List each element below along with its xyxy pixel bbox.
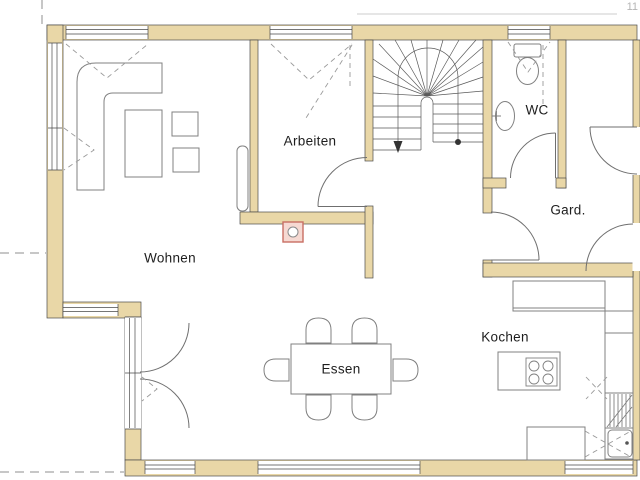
dining-chair (306, 395, 331, 420)
door-entry (590, 127, 637, 174)
living-furniture (77, 63, 248, 211)
room-label-wohnen: Wohnen (144, 251, 196, 266)
radiator (237, 146, 248, 211)
floor-plan: Wohnen Arbeiten WC Gard. Essen Kochen 11 (0, 0, 640, 480)
side-table (172, 112, 198, 136)
stair-direction-arrow (394, 141, 403, 153)
room-label-wc: WC (525, 103, 548, 118)
floor-plan-drawing (0, 0, 640, 480)
dining-chair (352, 395, 377, 420)
kitchen-fixtures (498, 281, 633, 460)
staircase (373, 40, 483, 153)
kitchen-sink-drain (625, 441, 629, 445)
dining-chair (264, 359, 289, 381)
door-gard-left (491, 212, 539, 260)
door-wc (511, 133, 556, 178)
room-label-essen: Essen (321, 362, 360, 377)
stair-walk-start-dot (455, 139, 461, 145)
circle-marker-symbol (283, 222, 303, 242)
wc-fixtures (492, 44, 541, 131)
dining-chair (393, 359, 418, 381)
dining-chair (306, 318, 331, 343)
room-label-arbeiten: Arbeiten (284, 134, 337, 149)
kitchen-counter-top (513, 281, 605, 311)
room-label-gard: Gard. (550, 203, 585, 218)
dining-chair (352, 318, 377, 343)
page-number: 11 (627, 1, 638, 13)
room-label-kochen: Kochen (481, 330, 529, 345)
toilet-tank (514, 44, 541, 57)
kitchen-counter-bottom (527, 427, 585, 460)
door-arbeiten (318, 158, 367, 207)
side-table (173, 148, 199, 172)
coffee-table (125, 110, 162, 177)
french-doors (140, 323, 189, 428)
